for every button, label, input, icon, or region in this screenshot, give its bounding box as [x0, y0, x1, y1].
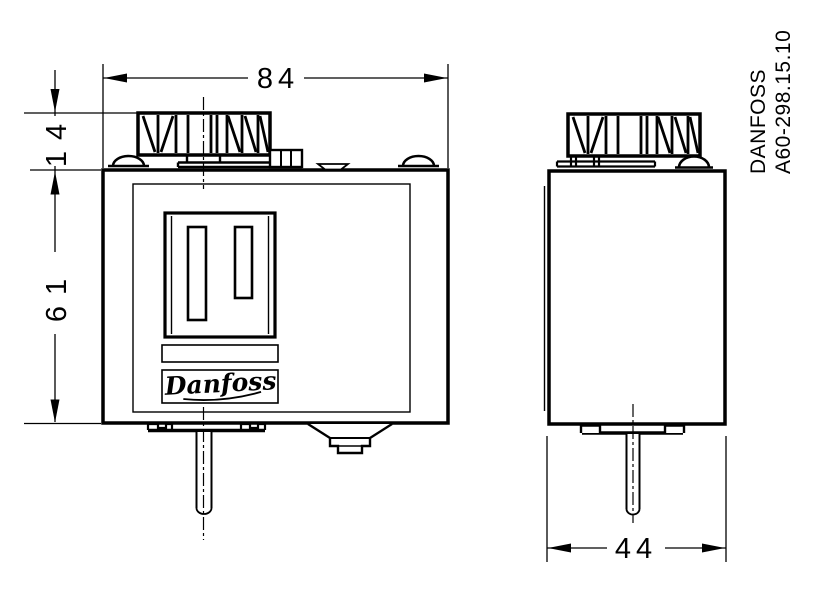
thermostat-dimensional-drawing: Danfoss — [0, 0, 818, 600]
dim-value-14: 14 — [41, 113, 73, 167]
screw-dome-right — [398, 156, 439, 166]
arrowhead-right — [424, 74, 447, 83]
screw-dome-left — [108, 156, 149, 166]
scale-slot-left — [188, 227, 206, 320]
terminal-block-front — [270, 150, 302, 167]
arrowhead-up-to-body-top — [51, 172, 60, 195]
arrowhead-down-to-knob-top — [51, 89, 60, 112]
dim-value-44: 44 — [615, 533, 657, 565]
drawing-reference-block: DANFOSS A60-298.15.10 — [747, 30, 795, 174]
knob-flange-side — [557, 158, 655, 167]
setting-scale-window — [165, 213, 275, 337]
scale-slot-right — [235, 227, 252, 298]
technical-drawing-canvas: Danfoss — [0, 0, 818, 600]
arrowhead-left — [548, 544, 571, 553]
top-dish-detail — [318, 164, 348, 170]
brand-name-vertical: DANFOSS — [747, 69, 770, 174]
dim-value-61: 61 — [41, 268, 73, 322]
mounting-plate-front — [148, 424, 265, 431]
mounting-tab-left — [581, 426, 600, 434]
mounting-tab-right — [665, 426, 684, 434]
arrowhead-down-to-body-bottom — [51, 400, 60, 423]
front-view: Danfoss — [103, 97, 448, 540]
arrowhead-left — [104, 74, 127, 83]
side-view — [545, 114, 726, 523]
knob-side — [568, 114, 700, 156]
dim-value-84: 84 — [257, 63, 299, 95]
screw-dome-side — [675, 157, 713, 168]
reference-number-vertical: A60-298.15.10 — [772, 30, 795, 174]
arrowhead-right — [702, 544, 725, 553]
label-window — [162, 345, 278, 362]
danfoss-logo-script: Danfoss — [163, 366, 277, 401]
cable-entry-funnel — [308, 424, 392, 453]
side-body-outline — [549, 171, 725, 424]
danfoss-logo-box: Danfoss — [162, 366, 278, 403]
